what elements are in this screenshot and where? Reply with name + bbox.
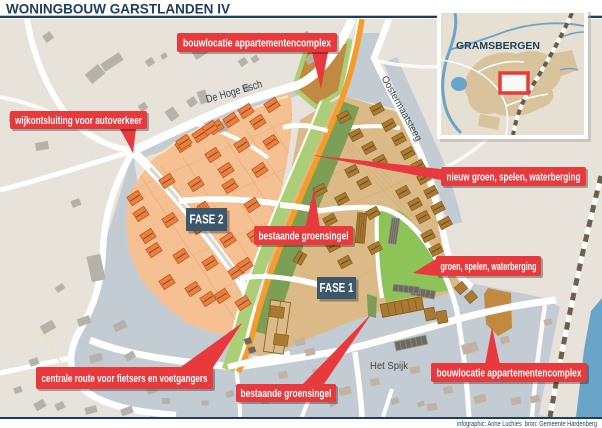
svg-text:bouwlocatie appartementencompl: bouwlocatie appartementencomplex [183, 38, 332, 50]
svg-text:groen, spelen, waterberging: groen, spelen, waterberging [441, 261, 537, 273]
svg-text:nieuw groen, spelen, waterberg: nieuw groen, spelen, waterberging [447, 172, 581, 184]
svg-text:WONINGBOUW GARSTLANDEN IV: WONINGBOUW GARSTLANDEN IV [6, 1, 231, 17]
svg-text:GRAMSBERGEN: GRAMSBERGEN [456, 40, 540, 52]
svg-text:bestaande groensingel: bestaande groensingel [241, 388, 332, 400]
svg-text:bouwlocatie appartementencompl: bouwlocatie appartementencomplex [437, 368, 583, 380]
svg-text:FASE 2: FASE 2 [190, 213, 224, 227]
svg-text:wijkontsluiting voor autoverke: wijkontsluiting voor autoverkeer [14, 115, 142, 127]
svg-text:Het Spijk: Het Spijk [370, 360, 409, 372]
svg-text:centrale route voor fietsers e: centrale route voor fietsers en voetgang… [42, 373, 208, 385]
svg-text:FASE 1: FASE 1 [320, 281, 354, 295]
svg-text:bestaande groensingel: bestaande groensingel [259, 231, 349, 243]
svg-text:infographic: Anne Luchies bro: infographic: Anne Luchies bron: Gemeente… [457, 421, 597, 428]
